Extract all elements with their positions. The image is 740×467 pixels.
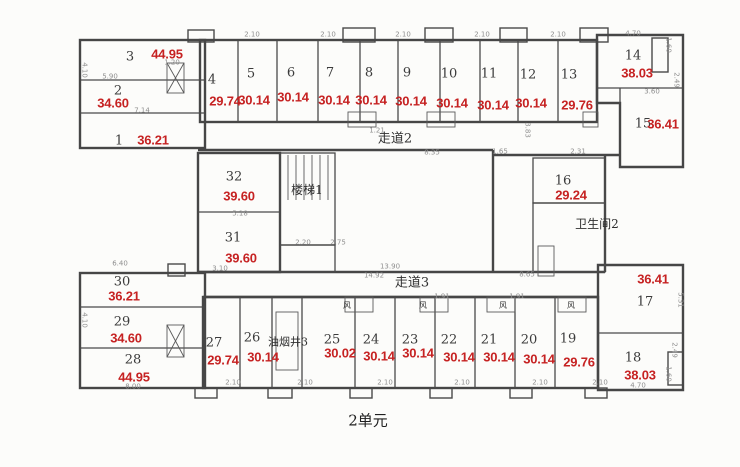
room-28-number: 28 <box>125 354 142 367</box>
dimension-39: 3.83 <box>524 122 531 138</box>
dimension-6: 1.20 <box>164 60 180 67</box>
room-25-area: 30.02 <box>324 347 356 360</box>
dimension-27: 2.10 <box>532 380 548 387</box>
dimension-35: 2.49 <box>673 72 680 88</box>
dimension-33: 4.10 <box>81 312 88 328</box>
dimension-11: 1.65 <box>492 149 508 156</box>
dimension-28: 2.10 <box>592 380 608 387</box>
room-17-number: 17 <box>637 296 654 309</box>
room-14-number: 14 <box>625 50 642 63</box>
room-8-number: 8 <box>365 67 373 80</box>
room-9-number: 9 <box>403 67 411 80</box>
room-15-area: 36.41 <box>647 118 679 131</box>
dimension-12: 2.31 <box>570 149 586 156</box>
room-12-number: 12 <box>520 69 537 82</box>
corridor-3-label: 走道3 <box>395 277 429 290</box>
air-shaft-label-1: 风 <box>343 302 351 310</box>
room-17-area: 36.41 <box>637 273 669 286</box>
smoke-shaft-3-label: 油烟井3 <box>268 337 308 348</box>
room-30-number: 30 <box>114 276 131 289</box>
room-16-number: 16 <box>555 175 572 188</box>
dimension-23: 2.10 <box>225 380 241 387</box>
dimension-30: 1.91 <box>434 294 450 301</box>
dimension-20: 3.10 <box>212 266 228 273</box>
room-1-number: 1 <box>115 135 123 148</box>
room-6-area: 30.14 <box>277 91 309 104</box>
room-10-area: 30.14 <box>436 97 468 110</box>
room-13-number: 13 <box>561 69 578 82</box>
dimension-29: 4.70 <box>630 383 646 390</box>
dimension-36: 1.60 <box>665 37 672 53</box>
room-18-area: 38.03 <box>624 369 656 382</box>
room-20-number: 20 <box>521 334 538 347</box>
dimension-8: 7.14 <box>134 108 150 115</box>
room-24-area: 30.14 <box>363 350 395 363</box>
dimension-2: 2.10 <box>395 32 411 39</box>
room-20-area: 30.14 <box>523 353 555 366</box>
dimension-0: 2.10 <box>244 32 260 39</box>
dimension-22: 8.00 <box>125 384 141 391</box>
room-30-area: 36.21 <box>108 290 140 303</box>
room-21-number: 21 <box>481 334 498 347</box>
room-26-number: 26 <box>244 332 261 345</box>
room-7-area: 30.14 <box>318 94 350 107</box>
dimension-7: 5.90 <box>102 74 118 81</box>
dimension-3: 2.10 <box>474 32 490 39</box>
room-32-number: 32 <box>226 171 243 184</box>
air-shaft-label-2: 风 <box>419 302 427 310</box>
room-19-number: 19 <box>560 333 577 346</box>
dimension-19: 8.65 <box>519 272 535 279</box>
dimension-32: 4.10 <box>81 62 88 78</box>
room-7-number: 7 <box>326 67 334 80</box>
room-3-number: 3 <box>126 51 134 64</box>
room-22-area: 30.14 <box>443 351 475 364</box>
dimension-9: 1.21 <box>369 128 385 135</box>
dimension-14: 5.18 <box>232 211 248 218</box>
dimension-26: 2.10 <box>454 380 470 387</box>
room-14-area: 38.03 <box>621 67 653 80</box>
dimension-5: 4.70 <box>625 31 641 38</box>
room-21-area: 30.14 <box>483 351 515 364</box>
dimension-18: 14.92 <box>364 273 384 280</box>
air-shaft-label-3: 风 <box>499 302 507 310</box>
air-shaft-label-4: 风 <box>567 302 575 310</box>
dimension-34: 5.31 <box>677 292 684 308</box>
room-31-number: 31 <box>225 232 242 245</box>
room-31-area: 39.60 <box>225 252 257 265</box>
room-8-area: 30.14 <box>355 94 387 107</box>
room-24-number: 24 <box>363 334 380 347</box>
dimension-21: 6.40 <box>112 261 128 268</box>
dimension-1: 2.10 <box>320 32 336 39</box>
dimension-38: 1.60 <box>665 366 672 382</box>
dimension-17: 13.90 <box>380 264 400 271</box>
room-9-area: 30.14 <box>395 95 427 108</box>
dimension-10: 8.35 <box>424 150 440 157</box>
dimension-13: 3.60 <box>644 89 660 96</box>
dimension-15: 2.20 <box>295 240 311 247</box>
room-29-number: 29 <box>114 316 131 329</box>
bathroom-2-label: 卫生间2 <box>575 218 619 230</box>
room-16-area: 29.24 <box>555 189 587 202</box>
room-6-number: 6 <box>287 67 295 80</box>
labels-layer: 136.21234.60344.95429.74530.14630.14730.… <box>0 0 740 467</box>
dimension-4: 2.10 <box>550 32 566 39</box>
room-10-number: 10 <box>441 68 458 81</box>
room-12-area: 30.14 <box>515 97 547 110</box>
room-5-number: 5 <box>247 68 255 81</box>
floorplan: 136.21234.60344.95429.74530.14630.14730.… <box>0 0 740 467</box>
dimension-25: 2.10 <box>377 380 393 387</box>
room-22-number: 22 <box>441 334 458 347</box>
room-2-area: 34.60 <box>97 97 129 110</box>
room-11-area: 30.14 <box>477 99 509 112</box>
room-11-number: 11 <box>481 68 498 81</box>
room-26-area: 30.14 <box>247 351 279 364</box>
room-18-number: 18 <box>625 352 642 365</box>
room-4-area: 29.74 <box>209 95 241 108</box>
room-1-area: 36.21 <box>137 134 169 147</box>
room-13-area: 29.76 <box>561 99 593 112</box>
unit-title: 2单元 <box>348 410 388 431</box>
room-23-area: 30.14 <box>402 347 434 360</box>
dimension-24: 2.10 <box>297 380 313 387</box>
room-27-area: 29.74 <box>207 354 239 367</box>
room-19-area: 29.76 <box>563 356 595 369</box>
room-5-area: 30.14 <box>238 94 270 107</box>
dimension-31: 1.91 <box>509 294 525 301</box>
room-4-number: 4 <box>208 74 216 87</box>
dimension-16: 2.75 <box>330 240 346 247</box>
room-32-area: 39.60 <box>223 190 255 203</box>
stairs-1-label: 楼梯1 <box>291 184 323 196</box>
room-29-area: 34.60 <box>110 332 142 345</box>
dimension-37: 2.49 <box>671 342 678 358</box>
room-27-number: 27 <box>206 337 223 350</box>
